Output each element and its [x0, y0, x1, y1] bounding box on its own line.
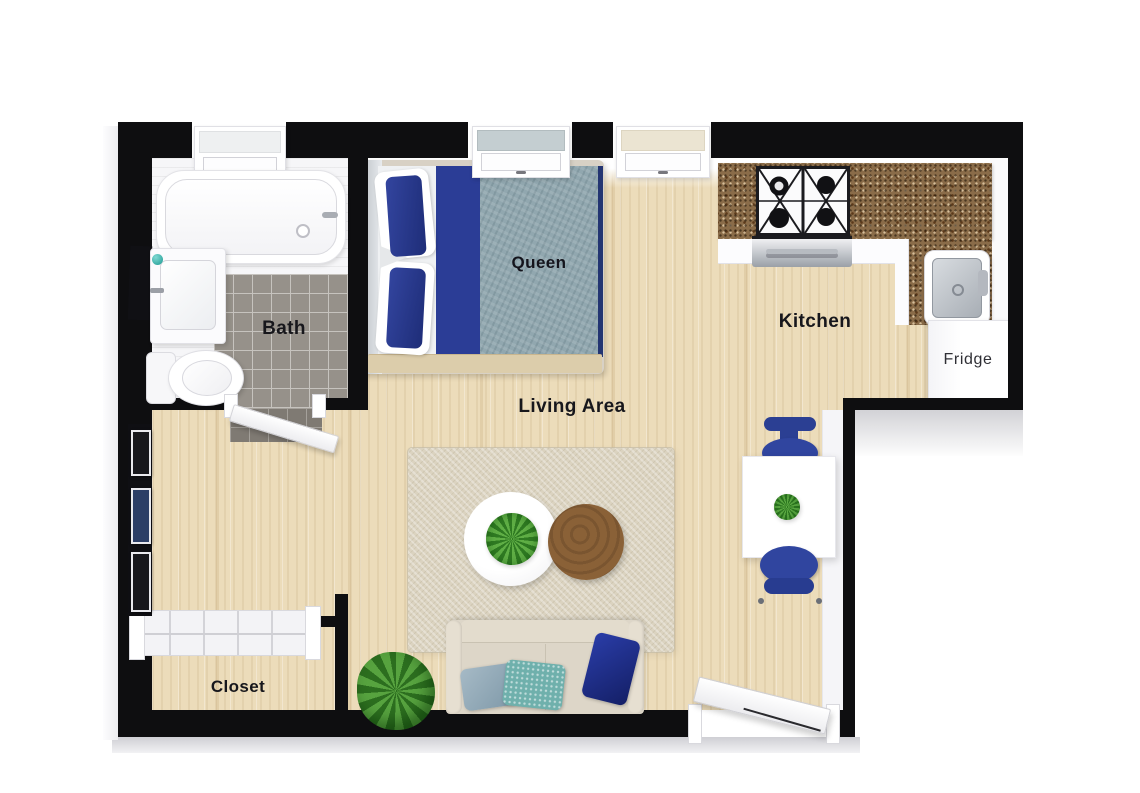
label-bath: Bath: [262, 318, 306, 340]
window-sill: [625, 153, 701, 171]
wall-frame: [131, 430, 151, 476]
label-living-area: Living Area: [518, 396, 625, 418]
sofa-arm-left: [446, 620, 462, 714]
dining-plant-icon: [774, 494, 800, 520]
oven-front: [752, 236, 852, 267]
bath-door-jamb-right: [312, 394, 326, 418]
tub-drain-icon: [296, 224, 310, 238]
bath-faucet-icon: [150, 288, 164, 293]
window-glass: [477, 130, 565, 151]
chair-caster: [758, 598, 764, 604]
window-glass: [199, 131, 281, 153]
label-kitchen: Kitchen: [779, 311, 851, 333]
exterior-shadow-kitchen: [855, 410, 1023, 456]
closet-shelf-cap-right: [305, 606, 321, 660]
bed-blanket-stripe: [436, 166, 484, 354]
closet-shelf: [136, 610, 320, 656]
label-fridge: Fridge: [944, 351, 993, 369]
label-queen-bed: Queen: [512, 253, 567, 273]
bath-mirror: [128, 246, 153, 321]
sink-faucet-icon: [978, 270, 988, 296]
floor-plant-icon: [357, 652, 435, 730]
wall-right: [843, 398, 855, 737]
tv-screen: [131, 488, 151, 544]
bath-sink: [160, 260, 216, 330]
wall-kitchen-right: [1008, 122, 1023, 410]
floor-plan: Bath Queen Kitchen Living Area Closet Fr…: [0, 0, 1140, 793]
window-latch-icon: [658, 171, 668, 174]
exterior-shadow-left: [103, 126, 118, 740]
window-bedroom-1: [472, 126, 570, 178]
chair-caster: [816, 598, 822, 604]
label-closet: Closet: [211, 677, 265, 697]
coffee-table-wood: [548, 504, 624, 580]
exterior-shadow-bottom: [112, 737, 860, 753]
bed-bench: [368, 354, 602, 373]
toilet-lid: [182, 360, 232, 396]
pillow-blue-bottom: [386, 267, 426, 349]
table-plant-icon: [486, 513, 538, 565]
right-wall-face: [822, 410, 844, 710]
tub-faucet-icon: [322, 212, 338, 218]
sink-drain-icon: [952, 284, 964, 296]
window-glass: [621, 130, 705, 151]
window-latch-icon: [516, 171, 526, 174]
pillow-blue-top: [385, 175, 426, 257]
wall-bath-bedroom: [348, 158, 368, 410]
window-sill: [481, 153, 561, 171]
stove-icon: [756, 166, 850, 236]
window-bedroom-2: [616, 126, 710, 178]
dining-chair-bottom-back: [764, 578, 814, 594]
wall-closet-vertical: [335, 594, 348, 710]
soap-dish-icon: [152, 254, 163, 265]
wall-frame: [131, 552, 151, 612]
wall-kitchen-bottom: [843, 398, 1023, 410]
sofa-pillow-teal: [502, 659, 566, 711]
kitchen-cabinets-side: [895, 239, 909, 325]
entry-jamb-left: [688, 704, 702, 744]
